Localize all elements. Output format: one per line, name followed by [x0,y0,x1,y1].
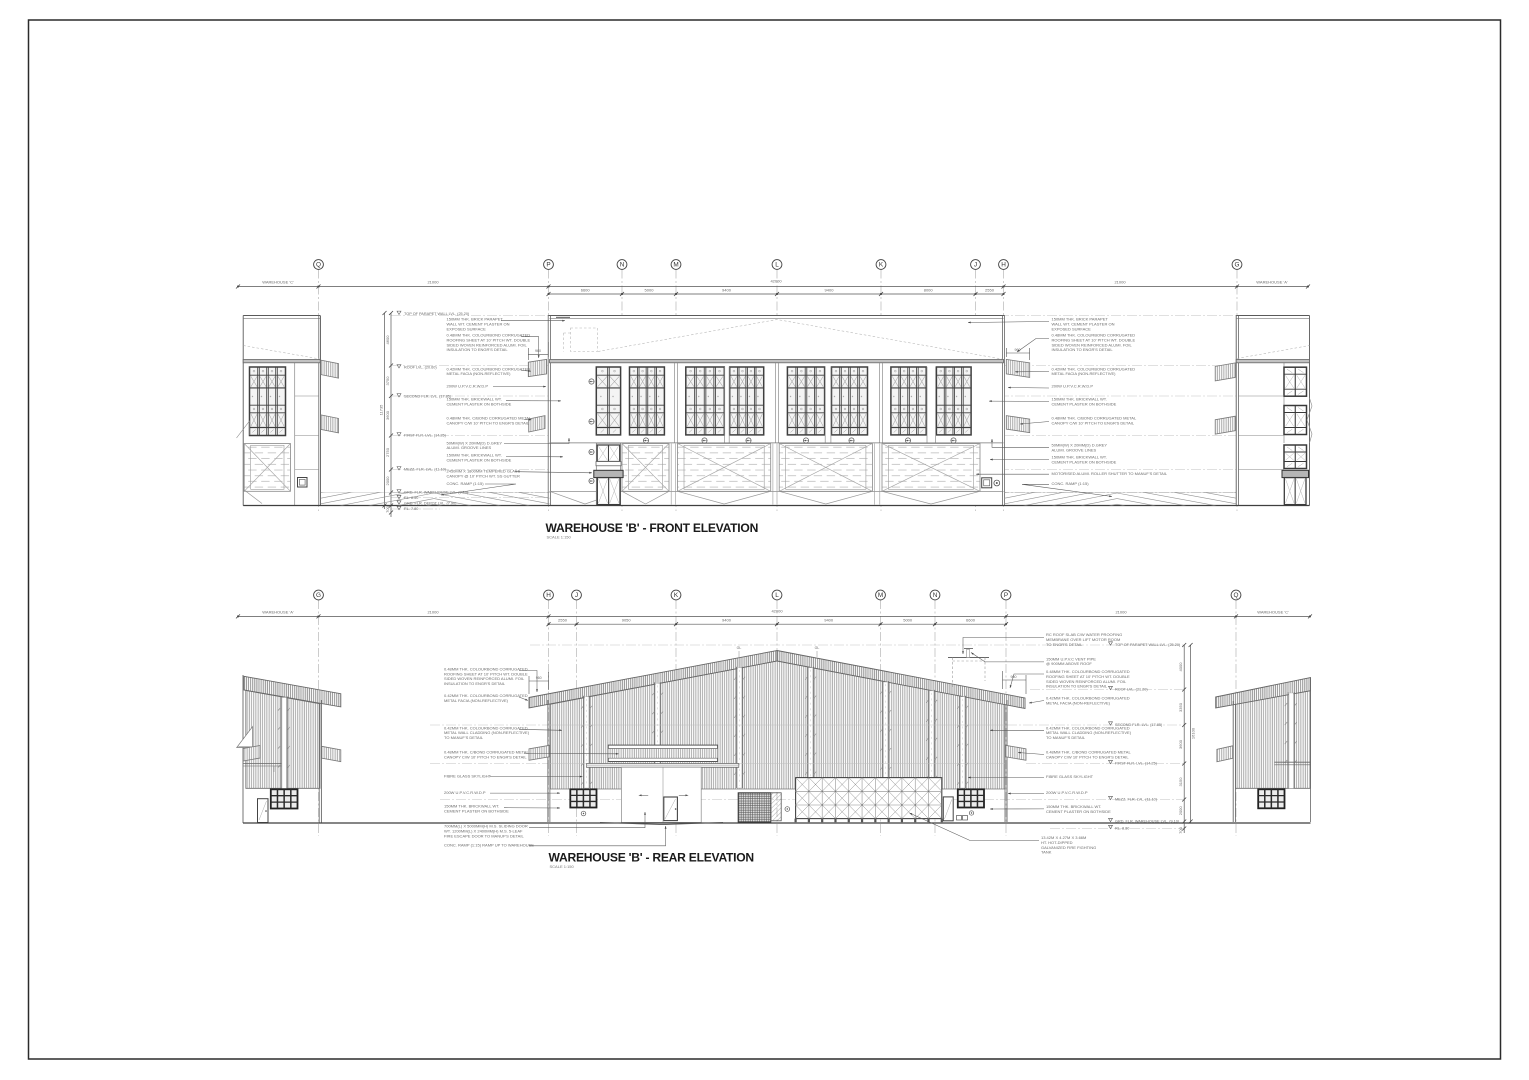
svg-text:J: J [575,592,578,599]
svg-text:2550: 2550 [985,287,995,292]
svg-text:K: K [674,592,679,599]
svg-text:9400: 9400 [722,618,732,623]
svg-text:METAL FACIA (NON-REFLECTIVE): METAL FACIA (NON-REFLECTIVE) [1052,371,1117,376]
svg-text:5000: 5000 [645,287,655,292]
svg-text:GRD. FLR. WAREHOUSE LVL. (9.10: GRD. FLR. WAREHOUSE LVL. (9.10) [1115,819,1180,823]
svg-text:960: 960 [536,676,542,680]
svg-text:RL. 7.80: RL. 7.80 [404,507,418,511]
svg-text:3600: 3600 [385,410,390,420]
svg-text:21000: 21000 [427,609,439,614]
svg-text:FIRE ESCAPE DOOR TO MANUF'S DE: FIRE ESCAPE DOOR TO MANUF'S DETAIL [444,833,524,838]
svg-text:TO MANUF'S DETAIL: TO MANUF'S DETAIL [444,735,484,740]
svg-text:9400: 9400 [825,287,835,292]
svg-text:MEZZ. FLR. LVL. (11.10): MEZZ. FLR. LVL. (11.10) [1115,797,1158,801]
svg-text:METAL FACIA (NON-REFLECTIVE): METAL FACIA (NON-REFLECTIVE) [447,371,512,376]
svg-text:200W U.P.V.C.R.W.D.P: 200W U.P.V.C.R.W.D.P [1046,790,1088,795]
svg-text:L: L [775,592,779,599]
svg-text:L: L [775,262,779,269]
svg-text:42000: 42000 [771,608,783,613]
svg-text:H: H [1001,262,1006,269]
svg-text:K: K [879,262,884,269]
svg-text:H: H [546,592,551,599]
svg-text:@ 900MM ABOVE ROOF: @ 900MM ABOVE ROOF [1046,661,1092,666]
svg-text:TANK: TANK [1041,850,1052,855]
svg-text:WAREHOUSE 'C': WAREHOUSE 'C' [1257,609,1289,614]
svg-text:200W U.P.V.C.R.W.D.P: 200W U.P.V.C.R.W.D.P [444,790,486,795]
svg-text:GL: GL [737,646,742,650]
svg-text:3150: 3150 [1178,777,1183,787]
svg-text:CEMENT PLASTER ON BOTHSIDE: CEMENT PLASTER ON BOTHSIDE [447,457,512,462]
svg-text:INSULATION TO ENGR'S DETAIL: INSULATION TO ENGR'S DETAIL [447,347,509,352]
svg-text:FIRST FLR. LVL. (14.25): FIRST FLR. LVL. (14.25) [1115,761,1158,765]
svg-text:G: G [1235,262,1240,269]
svg-text:EXPOSED SURFACE: EXPOSED SURFACE [1052,326,1092,331]
svg-text:9400: 9400 [824,618,834,623]
svg-text:CANOPY C/W 10' PITCH TO ENGR'S: CANOPY C/W 10' PITCH TO ENGR'S DETAIL [1046,754,1129,759]
svg-text:200W U.P.V.C.R.W.D.P: 200W U.P.V.C.R.W.D.P [447,383,489,388]
svg-text:METAL FACIA (NON-REFLECTIVE): METAL FACIA (NON-REFLECTIVE) [444,698,509,703]
svg-text:2550: 2550 [558,618,568,623]
svg-text:CEMENT PLASTER ON BOTHSIDE: CEMENT PLASTER ON BOTHSIDE [1046,809,1111,814]
svg-text:TO MANUF'S DETAIL: TO MANUF'S DETAIL [1046,735,1086,740]
svg-text:TOP OF PARAPET WALL LVL. (25.2: TOP OF PARAPET WALL LVL. (25.20) [404,312,470,316]
svg-text:P: P [546,262,550,269]
svg-text:TO ENGR'S DETAIL: TO ENGR'S DETAIL [1046,642,1083,647]
svg-text:960: 960 [535,349,541,353]
svg-text:SCALE 1:150: SCALE 1:150 [547,535,572,540]
svg-text:4000: 4000 [1178,662,1183,672]
svg-text:INSULATION TO ENGR'S DETAIL: INSULATION TO ENGR'S DETAIL [1052,347,1114,352]
svg-text:CEMENT PLASTER ON BOTHSIDE: CEMENT PLASTER ON BOTHSIDE [444,809,509,814]
svg-text:16100: 16100 [1190,727,1195,739]
svg-text:P: P [1004,592,1008,599]
svg-text:4600: 4600 [385,335,390,345]
svg-text:FIBRE GLASS SKYLIGHT: FIBRE GLASS SKYLIGHT [1046,774,1094,779]
svg-text:6600: 6600 [581,287,591,292]
svg-text:SECOND FLR. LVL. (17.85): SECOND FLR. LVL. (17.85) [404,394,452,398]
svg-text:6600: 6600 [966,618,976,623]
svg-text:2000: 2000 [385,476,390,486]
svg-text:TOP OF PARAPET WALL LVL. (25.2: TOP OF PARAPET WALL LVL. (25.20) [1115,643,1181,647]
svg-text:42000: 42000 [770,279,782,284]
svg-text:FIRST FLR. LVL. (14.25): FIRST FLR. LVL. (14.25) [404,433,447,437]
svg-text:MOTORISED ALUMI. ROLLER SHUTTE: MOTORISED ALUMI. ROLLER SHUTTER TO MANUF… [1052,471,1168,476]
svg-text:3600: 3600 [1178,739,1183,749]
svg-text:CONC. RAMP (1:15) RAMP UP TO W: CONC. RAMP (1:15) RAMP UP TO WAREHOUSE [444,843,534,848]
svg-text:WAREHOUSE 'B' - FRONT ELEVATIO: WAREHOUSE 'B' - FRONT ELEVATION [546,521,759,535]
svg-text:ROOF LVL. (21.20): ROOF LVL. (21.20) [1115,687,1148,691]
svg-text:CANOPY C/W 10' PITCH TO ENGR'S: CANOPY C/W 10' PITCH TO ENGR'S DETAIL [1052,420,1135,425]
svg-text:SCALE 1:150: SCALE 1:150 [550,864,575,869]
svg-text:CANOPY C/W 10' PITCH TO ENGR'S: CANOPY C/W 10' PITCH TO ENGR'S DETAIL [447,420,530,425]
svg-text:CONC. RAMP (1:15): CONC. RAMP (1:15) [1052,481,1090,486]
svg-text:3350: 3350 [1178,702,1183,712]
svg-text:8000: 8000 [924,287,934,292]
svg-text:M: M [878,592,883,599]
svg-text:WAREHOUSE 'A': WAREHOUSE 'A' [1256,280,1288,285]
svg-text:INSULATION TO ENGR'S DETAIL: INSULATION TO ENGR'S DETAIL [444,681,506,686]
svg-text:INSULATION TO ENGR'S DETAIL: INSULATION TO ENGR'S DETAIL [1046,684,1108,689]
svg-text:WAREHOUSE 'C': WAREHOUSE 'C' [262,280,294,285]
svg-text:CANOPY @ 10' PITCH WT. SS GUTT: CANOPY @ 10' PITCH WT. SS GUTTER [447,473,521,478]
svg-text:EXPOSED SURFACE: EXPOSED SURFACE [447,326,487,331]
svg-text:21000: 21000 [1114,280,1126,285]
svg-text:21000: 21000 [427,280,439,285]
svg-text:700: 700 [1178,826,1183,833]
svg-text:CEMENT PLASTER ON BOTHSIDE: CEMENT PLASTER ON BOTHSIDE [1052,460,1117,465]
svg-text:Q: Q [1234,592,1239,599]
svg-text:2750: 2750 [385,447,390,457]
svg-text:G: G [316,592,321,599]
svg-text:MEZZ. FLR. LVL. (11.10): MEZZ. FLR. LVL. (11.10) [404,467,447,471]
svg-text:5000: 5000 [903,618,913,623]
svg-text:CEMENT PLASTER ON BOTHSIDE: CEMENT PLASTER ON BOTHSIDE [1052,402,1117,407]
svg-text:CEMENT PLASTER ON BOTHSIDE: CEMENT PLASTER ON BOTHSIDE [447,402,512,407]
svg-text:Q: Q [316,262,321,269]
svg-text:J: J [974,262,977,269]
svg-text:700: 700 [385,505,390,512]
svg-text:N: N [620,262,625,269]
svg-text:21000: 21000 [1115,609,1127,614]
svg-text:200W U.P.V.C.R.W.D.P: 200W U.P.V.C.R.W.D.P [1052,383,1094,388]
svg-text:CANOPY C/W 10' PITCH TO ENGR'S: CANOPY C/W 10' PITCH TO ENGR'S DETAIL [444,754,527,759]
svg-text:CONC. RAMP (1:15): CONC. RAMP (1:15) [447,481,485,486]
svg-text:WAREHOUSE 'A': WAREHOUSE 'A' [262,609,294,614]
svg-text:WAREHOUSE 'B' - REAR ELEVATION: WAREHOUSE 'B' - REAR ELEVATION [549,851,754,865]
svg-text:ALUMI. GROOVE LINES: ALUMI. GROOVE LINES [1052,447,1097,452]
svg-text:METAL FACIA (NON-REFLECTIVE): METAL FACIA (NON-REFLECTIVE) [1046,701,1111,706]
svg-text:3750: 3750 [385,376,390,386]
svg-text:M: M [673,262,678,269]
svg-text:11735: 11735 [379,404,384,416]
svg-text:9400: 9400 [722,287,732,292]
svg-text:RL. 8.80: RL. 8.80 [1115,826,1129,830]
svg-text:ROOF LVL. (20.60): ROOF LVL. (20.60) [404,365,437,369]
svg-text:N: N [933,592,938,599]
svg-text:9050: 9050 [622,618,632,623]
svg-text:ALUMI. GROOVE LINES: ALUMI. GROOVE LINES [447,445,492,450]
svg-text:FIBRE GLASS SKYLIGHT: FIBRE GLASS SKYLIGHT [444,774,492,779]
svg-text:GL: GL [815,646,820,650]
svg-text:2000: 2000 [1178,806,1183,816]
